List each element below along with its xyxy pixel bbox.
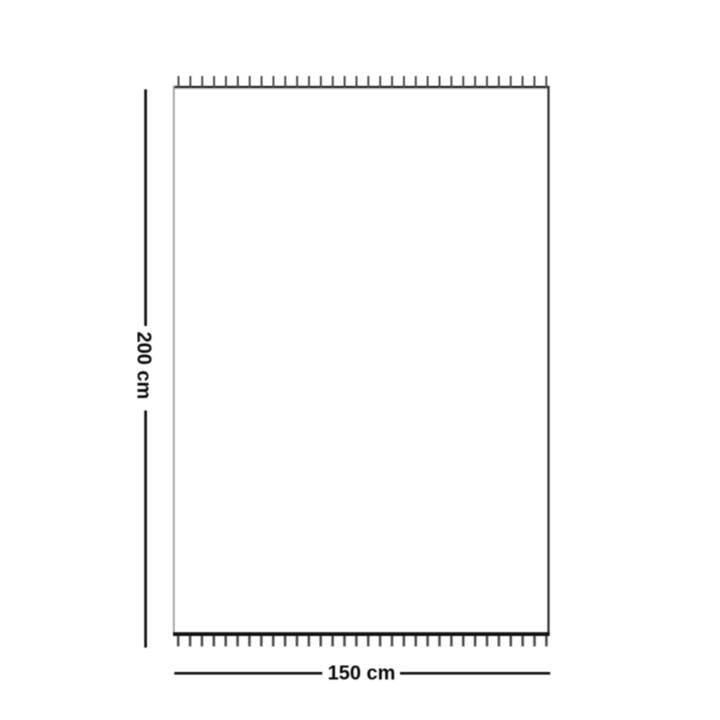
svg-text:200 cm: 200 cm [133,331,155,399]
svg-text:150 cm: 150 cm [328,663,396,685]
